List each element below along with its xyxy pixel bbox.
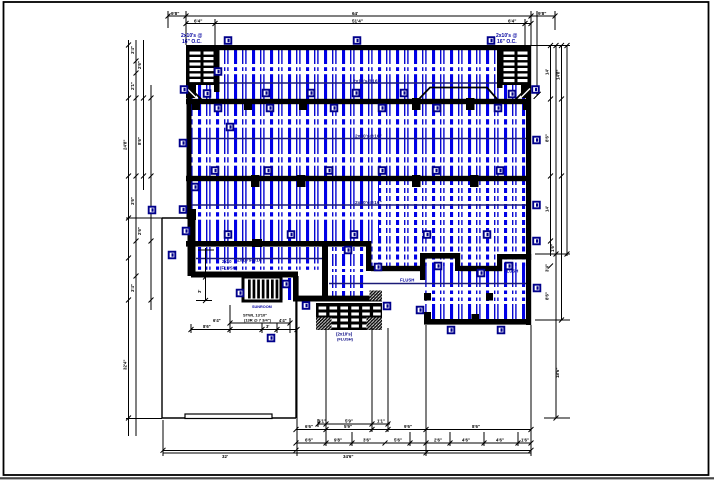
svg-text:(FLUSH): (FLUSH)	[337, 337, 354, 342]
svg-text:1'6": 1'6"	[550, 244, 555, 252]
svg-text:2x10's@16": 2x10's@16"	[353, 79, 380, 85]
svg-text:1'1": 1'1"	[377, 419, 385, 424]
svg-text:3': 3'	[197, 290, 202, 293]
svg-text:1'1": 1'1"	[318, 419, 326, 424]
svg-text:3'4": 3'4"	[545, 264, 550, 272]
svg-text:8'6": 8'6"	[545, 134, 550, 142]
svg-text:9'8": 9'8"	[334, 438, 342, 443]
svg-text:8'6": 8'6"	[137, 137, 142, 145]
svg-text:3'4": 3'4"	[130, 46, 135, 54]
svg-text:24'8": 24'8"	[123, 140, 128, 150]
svg-text:2x10's@16: 2x10's@16	[237, 258, 262, 264]
svg-text:3'6": 3'6"	[130, 197, 135, 205]
svg-text:6'6": 6'6"	[305, 424, 313, 429]
svg-text:6'4": 6'4"	[213, 318, 221, 323]
svg-text:8'6": 8'6"	[545, 292, 550, 300]
svg-text:4'4": 4'4"	[279, 318, 287, 323]
svg-text:4'6": 4'6"	[496, 438, 504, 443]
svg-text:32'4": 32'4"	[123, 360, 128, 370]
svg-text:2'6": 2'6"	[137, 61, 142, 69]
svg-text:2'6": 2'6"	[434, 438, 442, 443]
svg-text:(FLUSH): (FLUSH)	[220, 266, 238, 271]
svg-text:32': 32'	[222, 454, 228, 459]
svg-text:2x10's@16": 2x10's@16"	[355, 134, 382, 140]
svg-text:14': 14'	[545, 69, 550, 75]
svg-text:16" O.C.: 16" O.C.	[182, 39, 202, 45]
svg-text:51'4": 51'4"	[352, 18, 363, 23]
svg-text:4'6": 4'6"	[462, 438, 470, 443]
svg-text:6'4": 6'4"	[194, 18, 202, 23]
svg-text:34'6": 34'6"	[343, 454, 353, 459]
svg-text:6'4": 6'4"	[508, 18, 516, 23]
svg-text:16" O.C.: 16" O.C.	[497, 39, 517, 45]
svg-text:3'4": 3'4"	[130, 284, 135, 292]
svg-text:2'6": 2'6"	[137, 227, 142, 235]
svg-text:FLUSH: FLUSH	[504, 269, 518, 274]
svg-text:(13R @ 7 3/4"): (13R @ 7 3/4")	[244, 318, 272, 323]
svg-text:14': 14'	[545, 206, 550, 212]
svg-text:2x10: 2x10	[222, 259, 232, 264]
svg-text:2x10's@16": 2x10's@16"	[355, 200, 382, 206]
svg-text:1'6": 1'6"	[521, 438, 529, 443]
svg-text:14'8": 14'8"	[556, 70, 561, 80]
svg-text:8'6": 8'6"	[472, 424, 480, 429]
svg-text:9'8": 9'8"	[171, 11, 179, 16]
svg-text:18'6": 18'6"	[555, 368, 560, 378]
svg-text:6'6": 6'6"	[305, 438, 313, 443]
svg-text:5'6": 5'6"	[394, 438, 402, 443]
svg-text:9'6": 9'6"	[404, 424, 412, 429]
svg-text:9'8": 9'8"	[538, 11, 546, 16]
svg-text:SUNROOM: SUNROOM	[252, 305, 272, 309]
svg-text:5'9": 5'9"	[345, 419, 353, 424]
svg-text:5'9": 5'9"	[344, 424, 352, 429]
svg-text:FLUSH: FLUSH	[400, 278, 414, 283]
svg-text:2'1": 2'1"	[130, 82, 135, 90]
svg-text:8'6": 8'6"	[203, 324, 211, 329]
svg-text:3'6": 3'6"	[363, 438, 371, 443]
svg-text:64': 64'	[352, 11, 358, 16]
svg-text:3': 3'	[266, 324, 269, 329]
